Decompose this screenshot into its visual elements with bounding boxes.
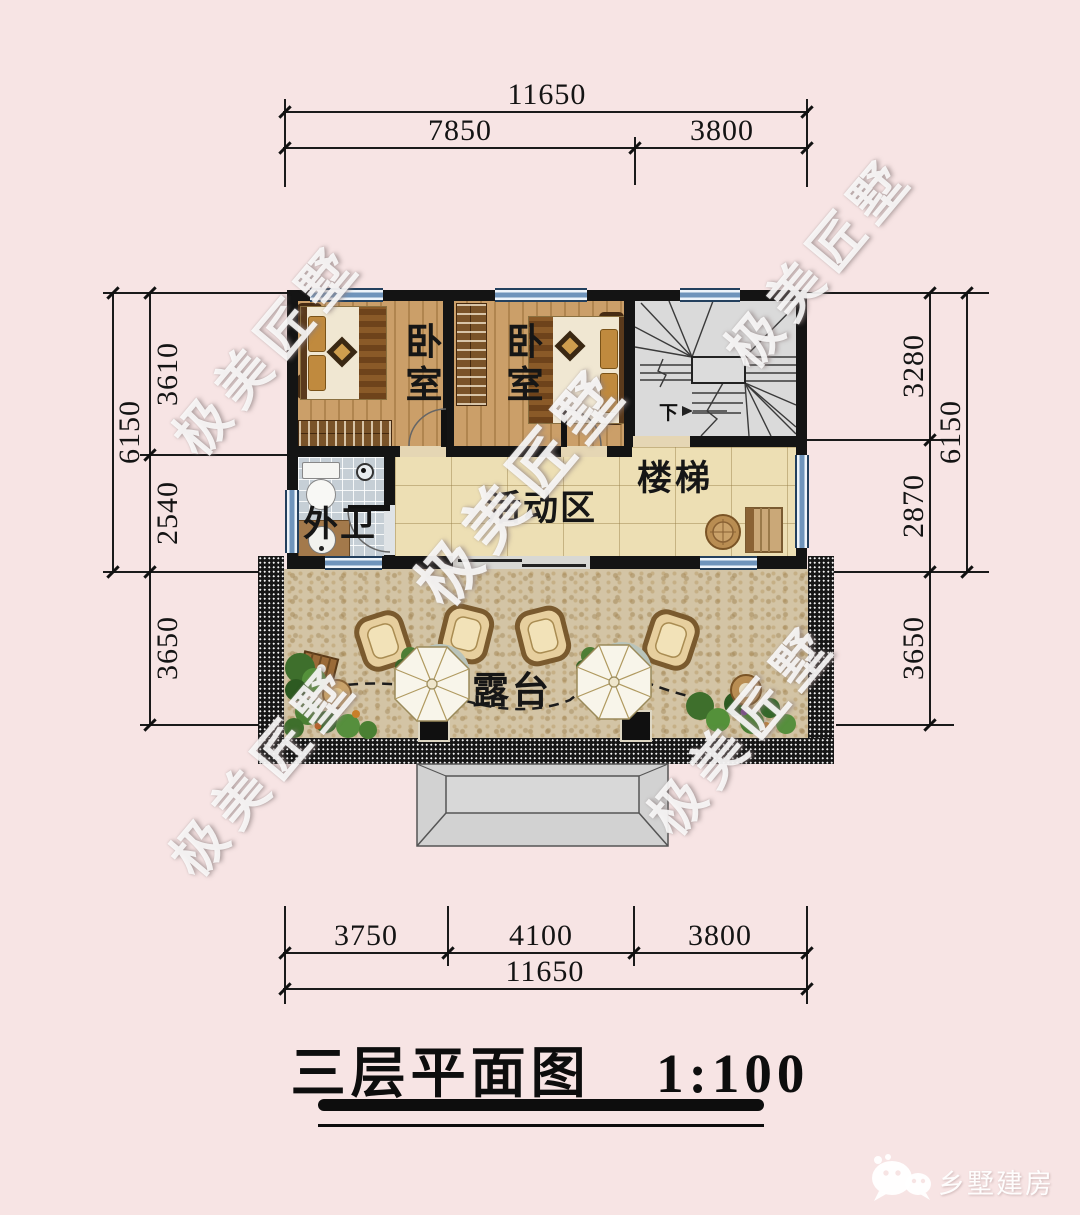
label-terrace: 露台 (472, 660, 552, 714)
label-stairs: 楼梯 (637, 450, 713, 501)
woven-basket (706, 515, 740, 549)
terrace-chair (514, 605, 571, 667)
floor-plan-canvas: 11650 7850 3800 3750 4100 3800 11650 (0, 0, 1080, 1215)
plants-right (686, 675, 796, 734)
label-bedroom1: 卧室 (392, 322, 446, 408)
title-underline-thick (318, 1099, 764, 1111)
parasol-table (576, 642, 652, 719)
door-bedroom1 (409, 409, 447, 447)
title-underline-thin (318, 1124, 764, 1127)
bamboo-mat (746, 508, 782, 552)
label-bedroom2: 卧室 (493, 322, 547, 408)
door-bedroom2 (561, 409, 601, 447)
title-text: 三层平面图 (291, 1043, 591, 1104)
label-bathroom: 外卫 (303, 496, 377, 547)
label-activity: 活动区 (486, 480, 597, 531)
drawing-title: 三层平面图 1:100 (280, 1028, 820, 1108)
title-scale: 1:100 (656, 1043, 809, 1104)
brand-name: 乡墅建房 (938, 1162, 1054, 1201)
round-stool (323, 680, 351, 708)
wechat-icon (866, 1152, 934, 1202)
parasol-table (395, 644, 470, 721)
